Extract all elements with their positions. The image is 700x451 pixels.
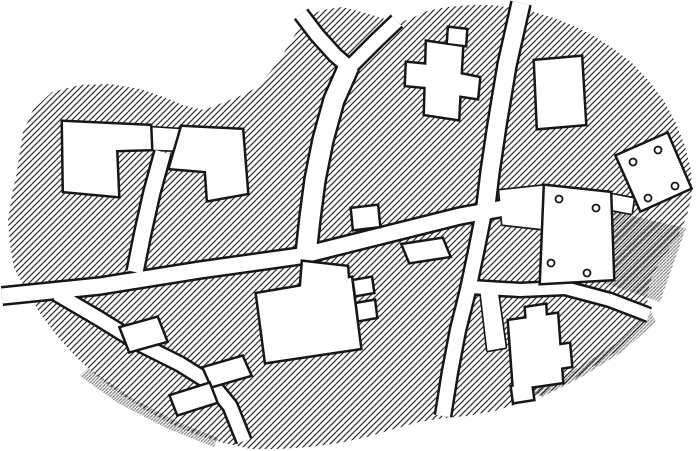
building-courtyard-pillared-pillar-dot-0 — [556, 196, 563, 203]
building-south-cross-house-body-2 — [556, 344, 571, 368]
building-courtyard-pillared-pillar-dot-1 — [593, 205, 600, 212]
building-central-great-house-body-3 — [357, 301, 376, 320]
building-north-cross-house-body-2 — [406, 63, 428, 87]
building-junction-barn — [403, 239, 449, 262]
building-courtyard-pillared-pillar-dot-2 — [548, 260, 555, 267]
building-south-cross-house-body-3 — [512, 384, 533, 402]
building-north-east-house — [535, 57, 585, 128]
building-north-east-house-body-0 — [535, 57, 585, 128]
engraved-village-plan-figure — [0, 0, 700, 451]
building-central-great-house-body-2 — [354, 278, 373, 295]
building-north-cross-house-body-3 — [457, 74, 479, 98]
building-courtyard-pillared-body-0 — [541, 186, 613, 283]
building-east-pillared-hall-pillar-dot-0 — [630, 159, 637, 166]
village-plan-svg — [0, 0, 700, 451]
building-east-pillared-hall-pillar-dot-2 — [672, 183, 679, 190]
building-roadside-cottage-body-0 — [352, 206, 379, 229]
building-north-cross-house-body-1 — [448, 28, 466, 45]
building-courtyard-pillared-pillar-dot-3 — [584, 270, 591, 277]
building-roadside-cottage — [352, 206, 379, 229]
building-east-pillared-hall-pillar-dot-1 — [655, 147, 662, 154]
forecourt-courtyard — [500, 186, 548, 229]
building-north-cross-house-body-0 — [425, 42, 462, 119]
building-south-cross-house-body-0 — [509, 314, 562, 389]
building-south-cross-house-body-1 — [526, 305, 546, 323]
building-courtyard-pillared — [541, 186, 613, 283]
building-east-pillared-hall-pillar-dot-3 — [645, 195, 652, 202]
